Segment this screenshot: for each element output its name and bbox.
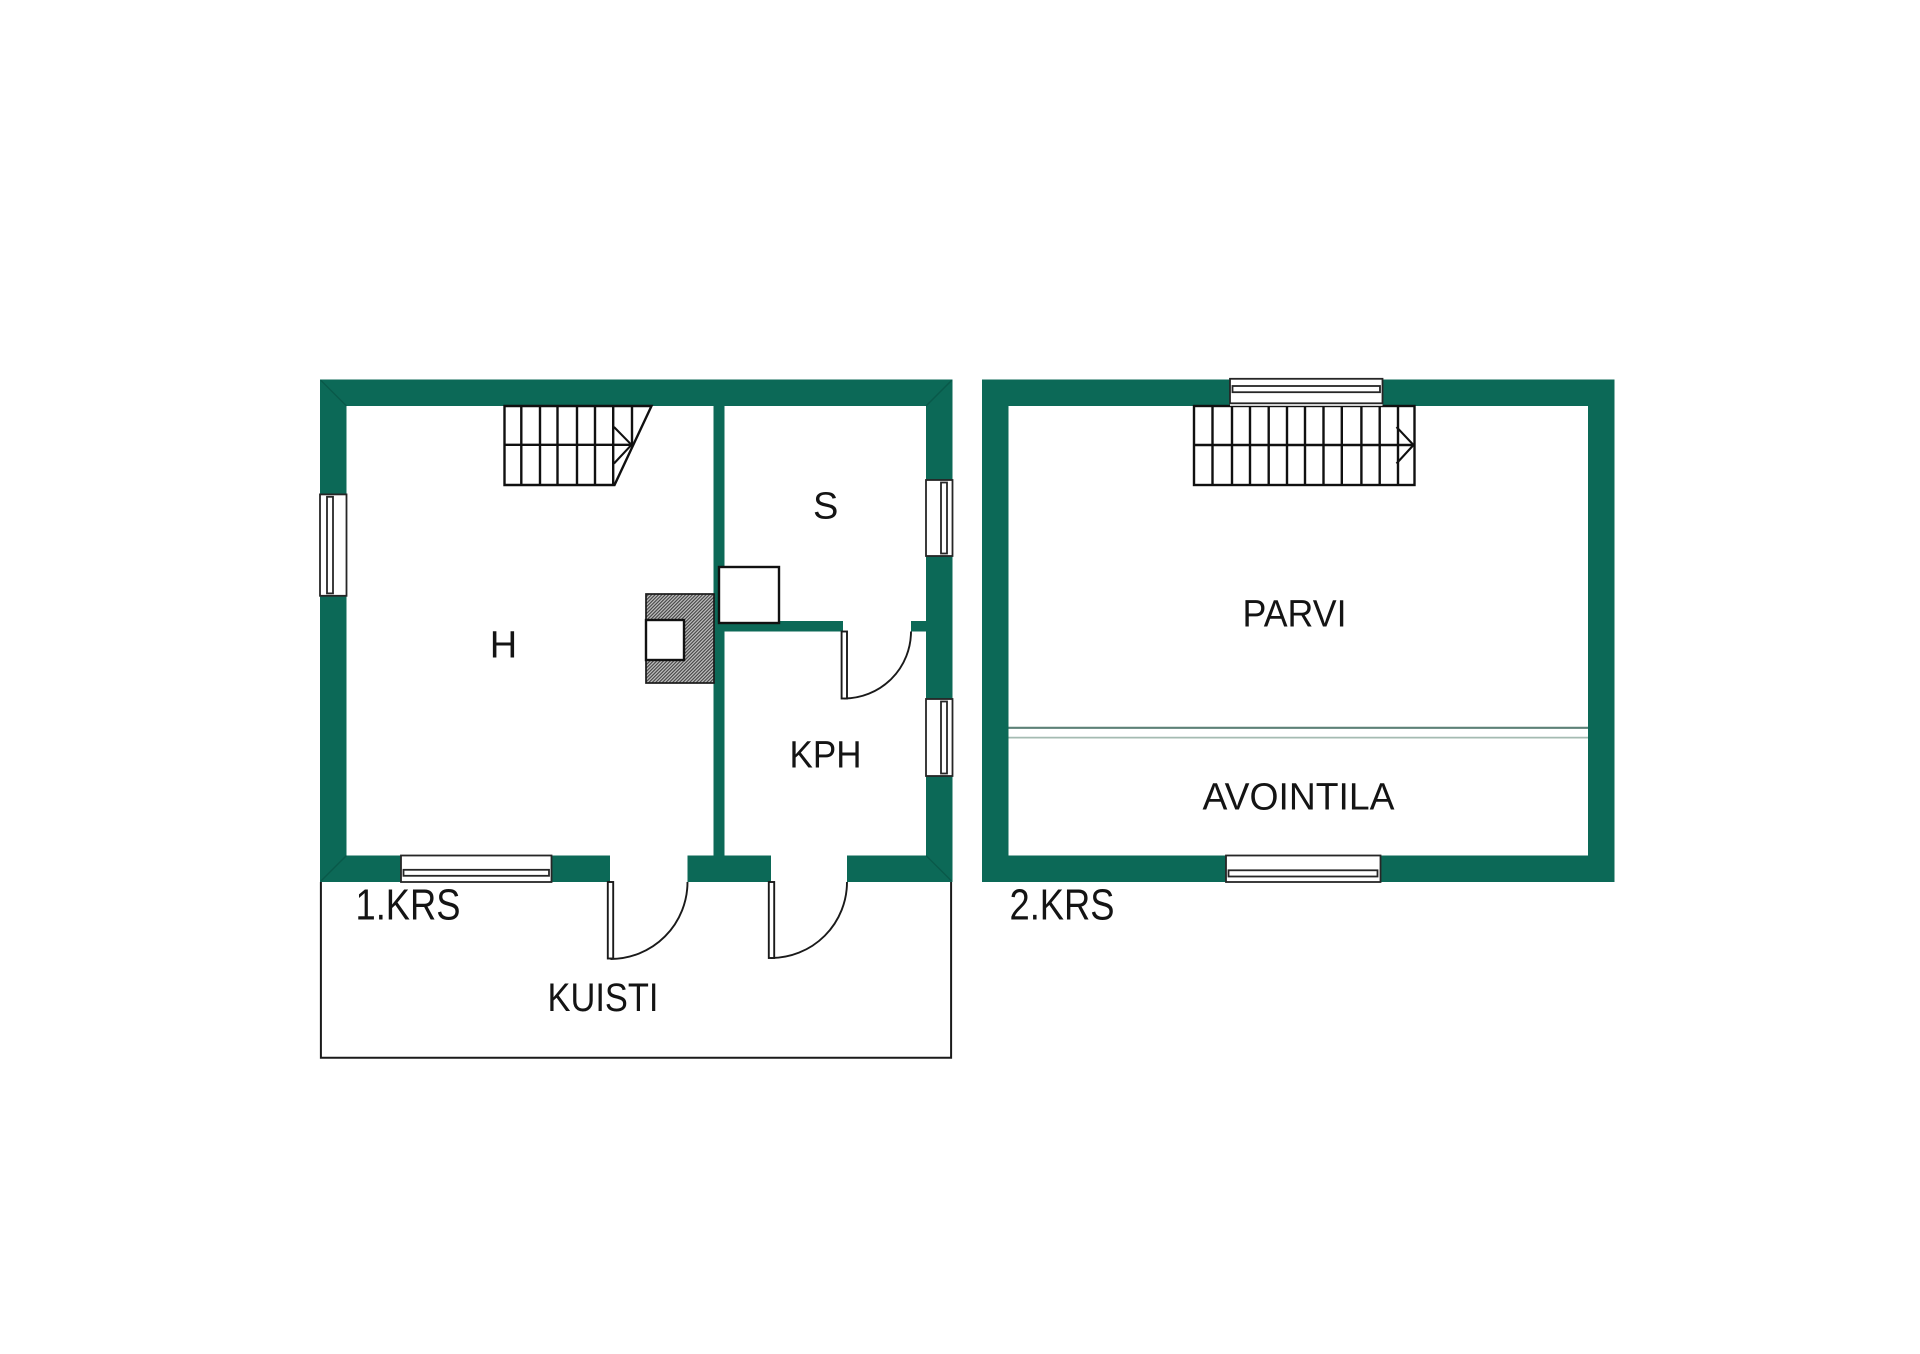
svg-text:PARVI: PARVI — [1243, 593, 1347, 635]
svg-text:2.KRS: 2.KRS — [1010, 880, 1115, 929]
svg-text:AVOINTILA: AVOINTILA — [1203, 777, 1396, 819]
svg-text:1.KRS: 1.KRS — [356, 880, 461, 929]
svg-text:KPH: KPH — [790, 734, 862, 776]
svg-text:H: H — [490, 625, 517, 667]
svg-text:KUISTI: KUISTI — [548, 976, 659, 1020]
svg-text:S: S — [813, 486, 838, 528]
